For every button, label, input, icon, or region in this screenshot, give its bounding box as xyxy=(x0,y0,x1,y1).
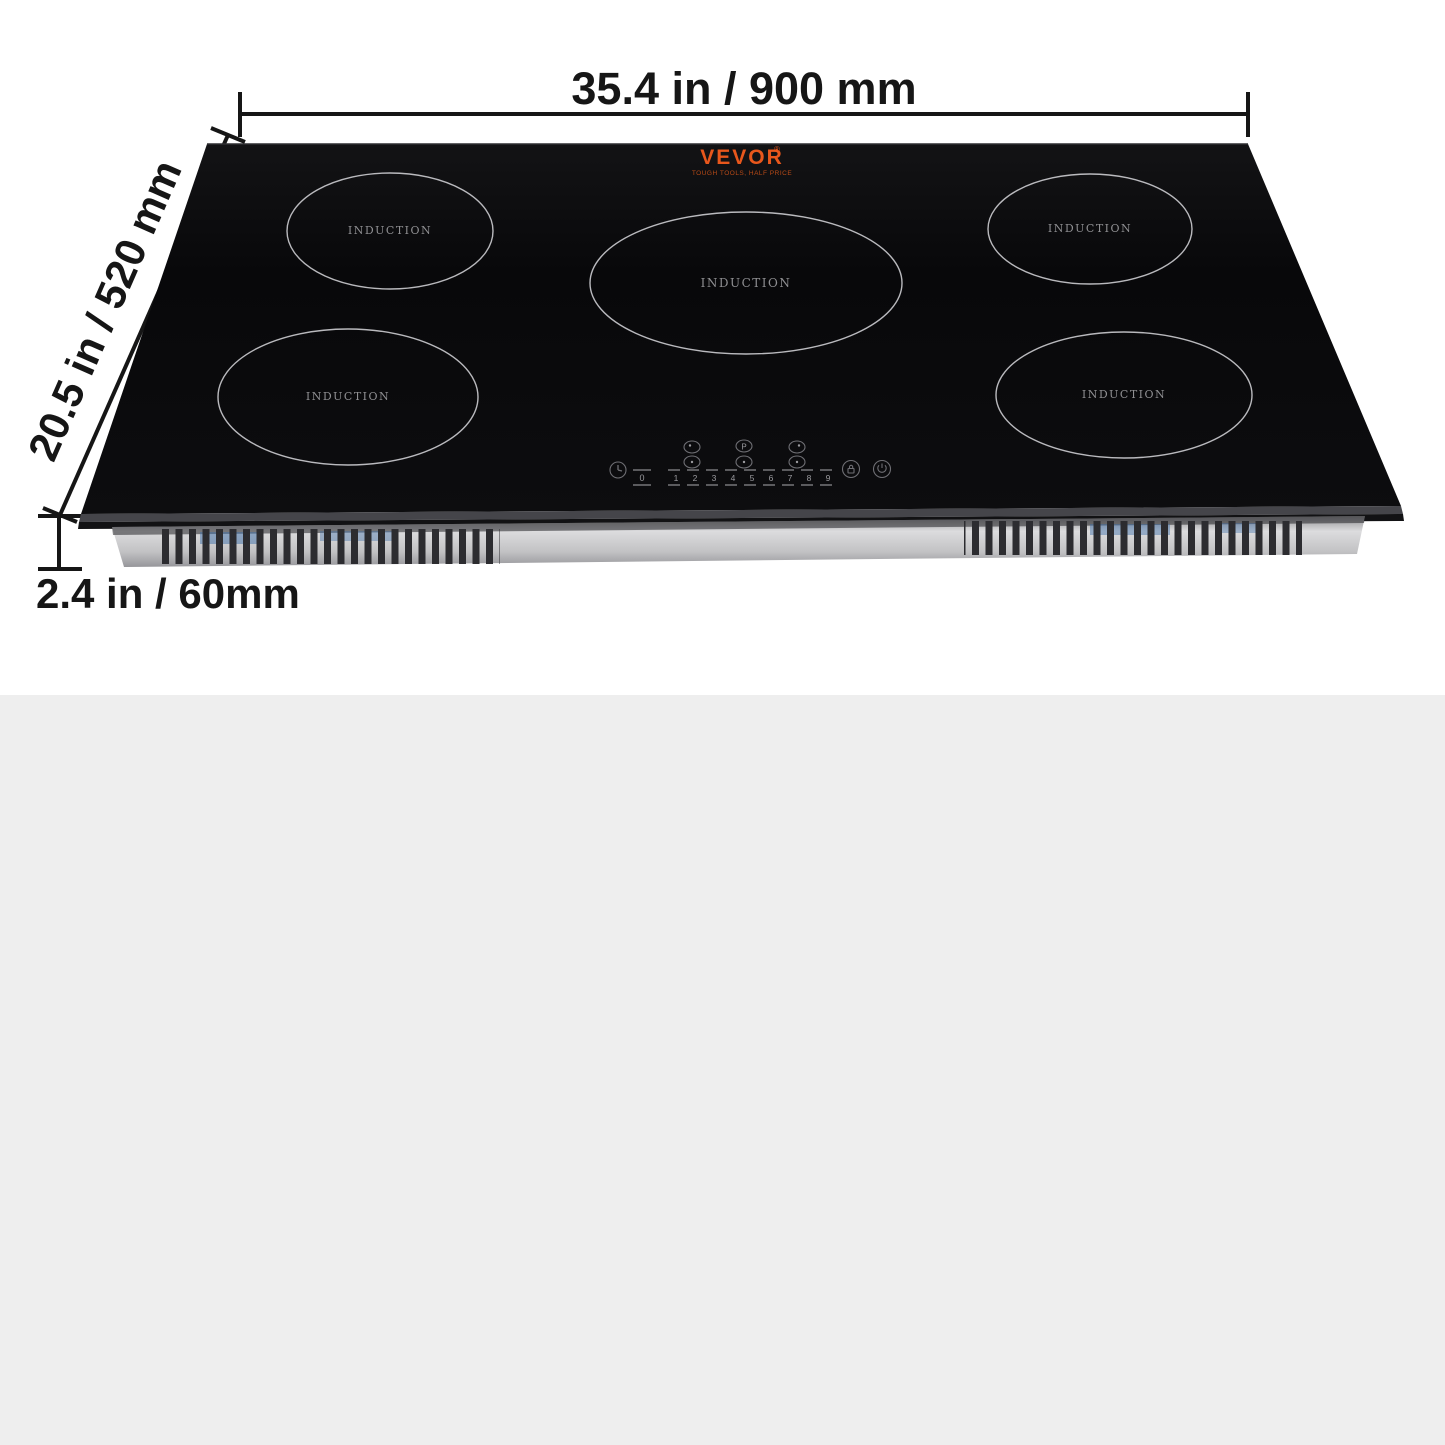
power-letter: P xyxy=(741,443,746,452)
induction-label: INDUCTION xyxy=(1082,388,1166,401)
power-level-digit: 0 xyxy=(639,473,644,483)
vevor-logo-mark: ® xyxy=(774,145,780,154)
vent-grille-right xyxy=(964,521,1302,555)
vevor-logo: VEVOR ® TOUGH TOOLS, HALF PRICE xyxy=(692,145,793,177)
height-dimension-label: 2.4 in / 60mm xyxy=(36,570,300,617)
vevor-logo-text: VEVOR xyxy=(700,146,784,169)
power-level-digit: 8 xyxy=(807,473,812,483)
power-level-digit: 3 xyxy=(712,473,717,483)
product-spec-image: 35.4 in / 900 mm 20.5 in / 520 mm 2.4 in… xyxy=(0,0,1445,1445)
height-dimension xyxy=(38,516,82,569)
induction-label: INDUCTION xyxy=(306,390,390,403)
power-level-digit: 6 xyxy=(769,473,774,483)
power-level-digit: 7 xyxy=(788,473,793,483)
vent-grille-left xyxy=(160,529,500,564)
induction-label: INDUCTION xyxy=(701,276,792,290)
width-dimension-label: 35.4 in / 900 mm xyxy=(571,63,916,114)
spec-section: Item Model Number: LI5-01 Net Weight: 14… xyxy=(0,695,1445,1445)
cooktop-glass-panel xyxy=(81,144,1401,514)
power-level-digit: 5 xyxy=(750,473,755,483)
induction-label: INDUCTION xyxy=(1048,222,1132,235)
power-level-digit: 9 xyxy=(826,473,831,483)
power-level-digit: 4 xyxy=(731,473,736,483)
induction-label: INDUCTION xyxy=(348,224,432,237)
product-illustration: 35.4 in / 900 mm 20.5 in / 520 mm 2.4 in… xyxy=(0,0,1445,700)
vevor-tagline: TOUGH TOOLS, HALF PRICE xyxy=(692,170,793,177)
power-level-digit: 1 xyxy=(674,473,679,483)
power-level-digit: 2 xyxy=(693,473,698,483)
